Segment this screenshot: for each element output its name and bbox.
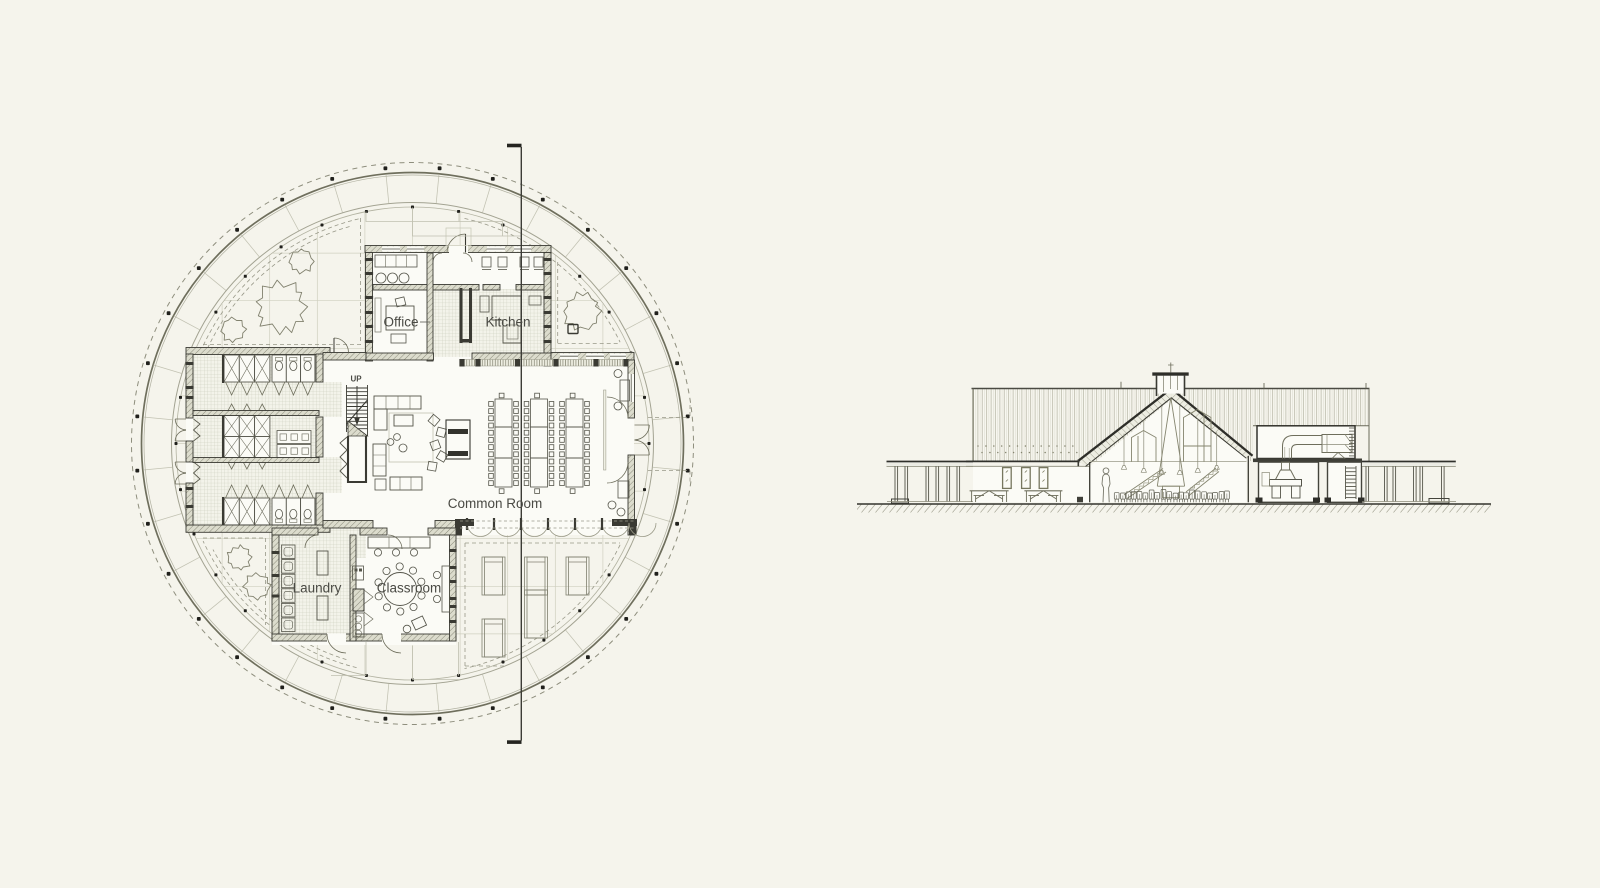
svg-text:Laundry: Laundry — [293, 581, 342, 596]
svg-text:Classroom: Classroom — [377, 581, 442, 596]
svg-text:Office: Office — [383, 315, 418, 330]
svg-text:Kitchen: Kitchen — [485, 315, 530, 330]
svg-text:UP: UP — [350, 375, 362, 384]
svg-text:Common Room: Common Room — [448, 496, 543, 511]
